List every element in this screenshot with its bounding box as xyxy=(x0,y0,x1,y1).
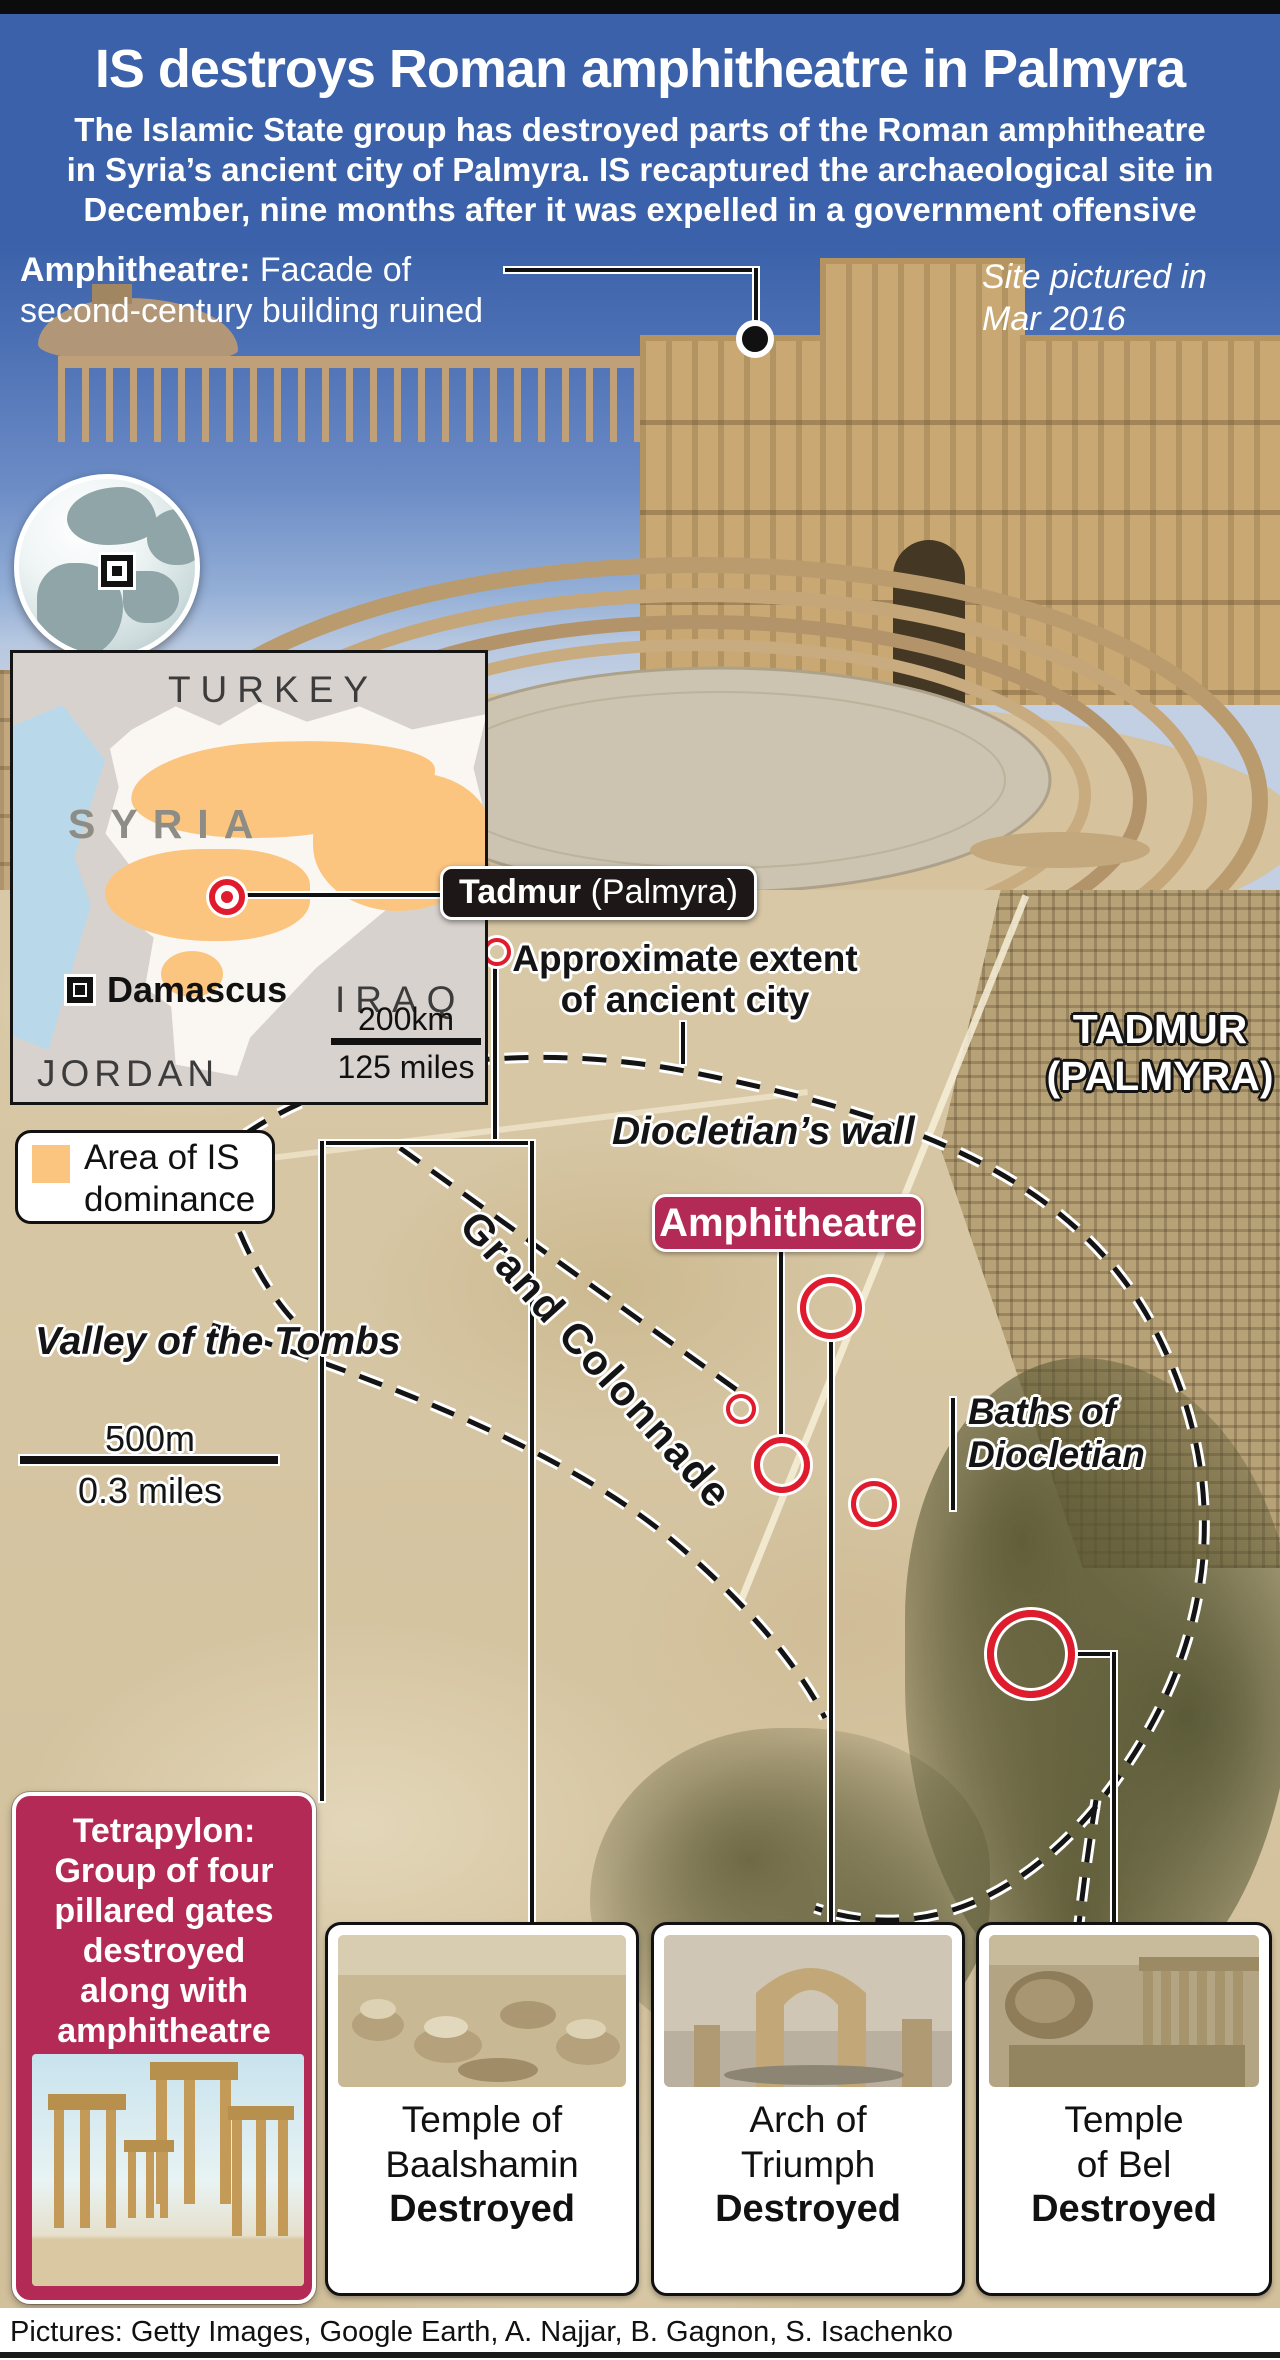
header: IS destroys Roman amphitheatre in Palmyr… xyxy=(0,14,1280,240)
annotation-line: Amphitheatre: Facade of xyxy=(20,250,520,291)
tetrapylon-text-line: Group of four xyxy=(16,1852,312,1891)
extent-label: Approximate extent of ancient city xyxy=(505,938,865,1020)
annotation-term: Amphitheatre: xyxy=(20,251,250,289)
baths-line: Diocletian xyxy=(968,1433,1188,1476)
legend-line: Area of IS xyxy=(84,1137,255,1179)
locator-square-icon xyxy=(101,555,133,587)
tadmur-rest: (Palmyra) xyxy=(581,873,738,911)
site-name-line: Temple of xyxy=(328,2097,636,2142)
city-line: TADMUR xyxy=(1040,1006,1280,1053)
credits-text: Pictures: Getty Images, Google Earth, A.… xyxy=(10,2316,953,2349)
site-box-temple-of-bel: Temple of Bel Destroyed xyxy=(976,1922,1272,2296)
site-circle-medium xyxy=(754,1437,810,1493)
annotation-leader-line xyxy=(505,268,758,272)
city-line: (PALMYRA) xyxy=(1040,1053,1280,1100)
site-status: Destroyed xyxy=(979,2187,1269,2232)
legend-text: Area of IS dominance xyxy=(84,1137,255,1221)
site-circle-small xyxy=(726,1394,756,1424)
site-box-baalshamin: Temple of Baalshamin Destroyed xyxy=(325,1922,639,2296)
site-name-line: Baalshamin xyxy=(328,2142,636,2187)
site-name-line: Temple xyxy=(979,2097,1269,2142)
baths-of-diocletian-label: Baths of Diocletian xyxy=(968,1390,1188,1476)
sat-scale-metric: 500m xyxy=(60,1418,240,1460)
baalshamin-photo xyxy=(338,1935,626,2087)
leader-line xyxy=(320,1141,534,1145)
baths-line: Baths of xyxy=(968,1390,1188,1433)
legend-line: dominance xyxy=(84,1179,255,1221)
scale-bar xyxy=(331,1038,481,1045)
tetrapylon-panel: Tetrapylon: Group of four pillared gates… xyxy=(12,1792,316,2304)
orange-swatch-icon xyxy=(32,1145,70,1183)
annotation-leader-line xyxy=(754,268,758,326)
subtitle-line: in Syria’s ancient city of Palmyra. IS r… xyxy=(0,150,1280,190)
site-status: Destroyed xyxy=(328,2187,636,2232)
caption-line: Site pictured in xyxy=(982,256,1242,298)
extent-tick-line xyxy=(681,1022,685,1064)
target-icon xyxy=(209,879,245,915)
subtitle-line: The Islamic State group has destroyed pa… xyxy=(0,110,1280,150)
diocletians-wall-label: Diocletian’s wall xyxy=(612,1110,915,1154)
site-name-line: Triumph xyxy=(654,2142,962,2187)
site-name-line: Arch of xyxy=(654,2097,962,2142)
globe-land-asia xyxy=(147,509,200,565)
credits-bar: Pictures: Getty Images, Google Earth, A.… xyxy=(0,2308,1280,2360)
country-label-turkey: TURKEY xyxy=(123,669,423,711)
country-label-syria: SYRIA xyxy=(68,801,268,848)
tetrapylon-text-line: Tetrapylon: xyxy=(16,1812,312,1851)
country-label-jordan: JORDAN xyxy=(37,1053,219,1095)
tetrapylon-leader-line xyxy=(320,1141,324,1801)
map-clip: TURKEY SYRIA IRAQ JORDAN Damascus 200km … xyxy=(13,653,485,1102)
site-circle-temple-of-bel xyxy=(987,1610,1075,1698)
capital-label: Damascus xyxy=(107,969,287,1011)
arch-photo xyxy=(664,1935,952,2087)
photo-caption: Site pictured in Mar 2016 xyxy=(982,256,1242,340)
annotation-line: second-century building ruined xyxy=(20,291,520,332)
bel-leader-line xyxy=(1112,1652,1116,1930)
site-circle-amphitheatre xyxy=(800,1277,862,1339)
tetrapylon-text-line: destroyed xyxy=(16,1932,312,1971)
tetrapylon-text-line: amphitheatre xyxy=(16,2012,312,2051)
top-black-bar xyxy=(0,0,1280,14)
baths-tick-line xyxy=(951,1398,955,1510)
sat-scale-bar xyxy=(20,1456,278,1464)
globe-land-europe xyxy=(67,487,157,545)
site-caption: Temple of Baalshamin Destroyed xyxy=(328,2097,636,2232)
globe-locator xyxy=(14,474,200,660)
sat-scale-miles: 0.3 miles xyxy=(60,1470,240,1512)
site-name-line: of Bel xyxy=(979,2142,1269,2187)
tetrapylon-text-line: pillared gates xyxy=(16,1892,312,1931)
syria-locator-map: TURKEY SYRIA IRAQ JORDAN Damascus 200km … xyxy=(10,650,488,1105)
photo-annotation: Amphitheatre: Facade of second-century b… xyxy=(20,250,520,332)
site-status: Destroyed xyxy=(654,2187,962,2232)
arch-leader-line xyxy=(829,1340,833,1932)
amphitheatre-badge: Amphitheatre xyxy=(652,1194,924,1252)
tetrapylon-leader-line xyxy=(493,963,497,1145)
bottom-rule xyxy=(0,2352,1280,2358)
subtitle-line: December, nine months after it was expel… xyxy=(0,190,1280,230)
extent-line: Approximate extent xyxy=(505,938,865,979)
extent-line: of ancient city xyxy=(505,979,865,1020)
tetrapylon-pillars-graphic xyxy=(32,2054,304,2286)
is-dominance-legend: Area of IS dominance xyxy=(15,1130,275,1224)
valley-of-tombs-label: Valley of the Tombs xyxy=(35,1320,401,1364)
tetrapylon-photo xyxy=(32,2054,304,2286)
bel-leader-line xyxy=(1072,1652,1116,1656)
tadmur-label: Tadmur (Palmyra) xyxy=(440,866,757,920)
capital-square-icon xyxy=(67,977,93,1003)
annotation-text: Facade of xyxy=(250,251,411,289)
annotation-pointer-dot-icon xyxy=(736,320,774,358)
site-caption: Arch of Triumph Destroyed xyxy=(654,2097,962,2232)
infographic-canvas: IS destroys Roman amphitheatre in Palmyr… xyxy=(0,0,1280,2360)
caption-line: Mar 2016 xyxy=(982,298,1242,340)
tadmur-palmyra-label: TADMUR (PALMYRA) xyxy=(1040,1006,1280,1100)
page-title: IS destroys Roman amphitheatre in Palmyr… xyxy=(0,38,1280,100)
tadmur-leader-line xyxy=(245,893,445,897)
tetrapylon-text-line: along with xyxy=(16,1972,312,2011)
page-subtitle: The Islamic State group has destroyed pa… xyxy=(0,110,1280,230)
scale-miles-label: 125 miles xyxy=(331,1049,481,1086)
badge-leader-line xyxy=(779,1252,783,1440)
scale-km-label: 200km xyxy=(331,1001,481,1038)
tadmur-bold: Tadmur xyxy=(459,873,581,911)
site-circle xyxy=(851,1481,897,1527)
site-box-arch-of-triumph: Arch of Triumph Destroyed xyxy=(651,1922,965,2296)
site-caption: Temple of Bel Destroyed xyxy=(979,2097,1269,2232)
bel-photo xyxy=(989,1935,1259,2087)
